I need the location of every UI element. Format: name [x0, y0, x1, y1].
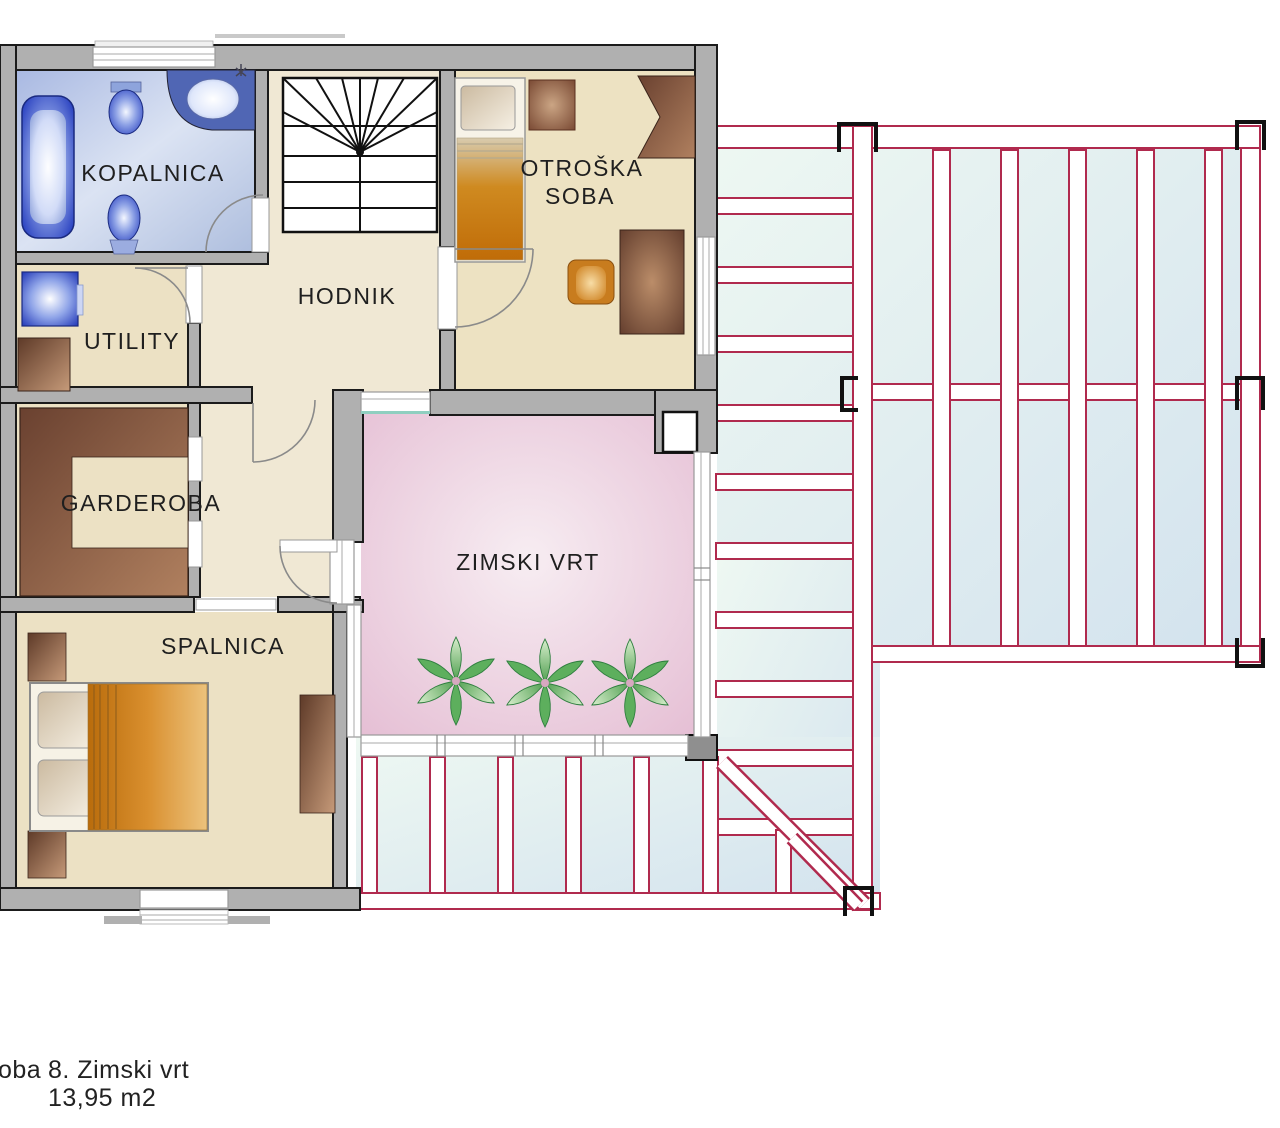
winter-garden-plants: [415, 637, 671, 727]
nightstand-bottom: [28, 831, 66, 878]
utility-counter: [18, 338, 70, 391]
otroska-wall-left-lower: [440, 330, 455, 390]
legend-truncated-room-name: oba: [0, 1056, 41, 1084]
zimski-vrt-door-leaf: [280, 540, 337, 552]
dresser: [300, 695, 335, 813]
spalnica-label: SPALNICA: [161, 633, 285, 659]
staircase: [283, 78, 437, 232]
zimski-vrt-wall-west: [333, 390, 363, 542]
otroska-balcony-door: [697, 237, 715, 355]
pergola-middle-rail: [872, 384, 1260, 400]
legend-entry: 8. Zimski vrt: [48, 1056, 189, 1084]
kopalnica-door-slot: [252, 198, 269, 252]
legend-area: 13,95 m2: [48, 1084, 156, 1112]
kopalnica-wall-right: [255, 70, 268, 202]
zimski-vrt-west-glazing: [347, 605, 361, 737]
small-cabinet: [529, 80, 575, 130]
pergola-top-rail: [715, 126, 1260, 148]
floor-plan-drawing: KOPALNICA UTILITY HODNIK OTROŠKA SOBA GA…: [0, 0, 1280, 1128]
zimski-vrt-label: ZIMSKI VRT: [456, 549, 600, 575]
bidet: [108, 195, 140, 241]
terrace-bottom-rail: [356, 893, 880, 909]
pergola-spine-beam: [853, 126, 872, 910]
floor-plan-page: KOPALNICA UTILITY HODNIK OTROŠKA SOBA GA…: [0, 0, 1280, 1128]
child-blanket: [457, 138, 523, 260]
otroska-label-line1: OTROŠKA: [521, 154, 644, 181]
zimski-vrt-east-glazing: [694, 452, 710, 737]
kopalnica-wall-bottom: [16, 252, 268, 264]
roof-edge-line: [215, 34, 345, 38]
desk: [620, 230, 684, 334]
nightstand-top: [28, 633, 66, 681]
exterior-wall-right: [695, 45, 717, 415]
kopalnica-label: KOPALNICA: [81, 160, 224, 186]
washbasin: [187, 79, 239, 119]
zimski-vrt-corner-column-white: [663, 412, 697, 452]
hodnik-label: HODNIK: [298, 283, 396, 309]
otroska-wall-left-upper: [440, 70, 455, 247]
zimski-vrt-north-window: [361, 392, 430, 414]
bed-blanket: [88, 684, 207, 830]
zimski-vrt-corner-column-gray: [686, 735, 717, 760]
utility-door-slot: [186, 266, 202, 323]
exterior-wall-left: [0, 45, 16, 910]
utility-label: UTILITY: [84, 328, 180, 354]
toilet: [109, 90, 143, 134]
stair-winder-center: [356, 148, 364, 156]
zimski-vrt-south-glazing: [361, 735, 688, 756]
child-pillow: [461, 86, 515, 130]
legend: oba 8. Zimski vrt 13,95 m2: [0, 1056, 189, 1112]
kopalnica-window: [93, 47, 215, 67]
garderoba-label: GARDEROBA: [61, 490, 221, 516]
otroska-label-line2: SOBA: [545, 183, 615, 209]
spalnica-wall-top-left: [0, 597, 194, 612]
pergola-right-edge-beam: [1241, 126, 1260, 662]
spalnica-door-leaf: [196, 599, 276, 610]
washing-machine: [22, 272, 78, 326]
otroska-door-slot: [438, 247, 457, 329]
pergola-bottom-rail: [872, 646, 1260, 662]
